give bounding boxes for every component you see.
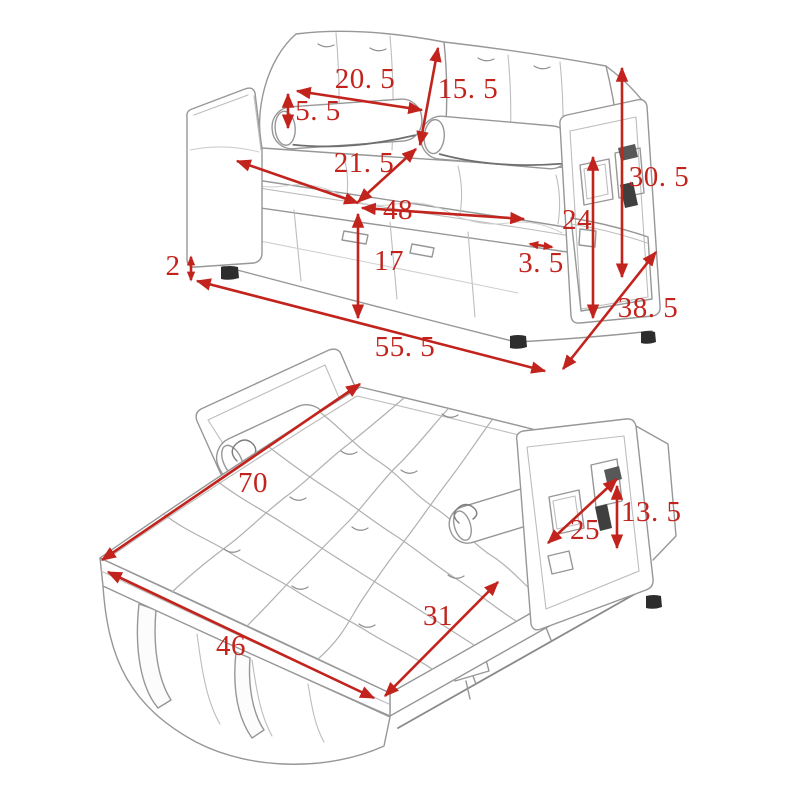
dim-pillow-height: 5. 5: [288, 94, 341, 128]
sofa-dimension-diagram: 20. 5 5. 5 15. 5 21. 5 48 17 3. 5: [0, 0, 800, 800]
dim-label-seat-depth: 21. 5: [334, 147, 395, 179]
dim-seat-front-height: 17: [358, 214, 404, 318]
sofa-bed-open-sketch: [100, 349, 676, 764]
dim-label-armrest-thickness: 3. 5: [518, 247, 564, 279]
sofa-closed-sketch: [187, 31, 660, 348]
dim-label-overall-width: 55. 5: [375, 331, 436, 363]
dimension-diagram-page: 20. 5 5. 5 15. 5 21. 5 48 17 3. 5: [0, 0, 800, 800]
left-armrest: [187, 88, 262, 267]
dim-label-side-pocket-height: 24: [562, 204, 592, 236]
dim-label-armrest-panel-height: 13. 5: [621, 496, 682, 528]
dim-label-overall-depth: 38. 5: [618, 292, 679, 324]
dim-label-seat-front-height: 17: [374, 245, 404, 277]
dim-label-back-cushion-width: 20. 5: [335, 63, 396, 95]
drawer-handle: [410, 244, 434, 257]
dim-armrest-thickness: 3. 5: [518, 244, 564, 279]
drawer-handle: [342, 231, 368, 244]
dim-overall-width: 55. 5: [197, 281, 545, 371]
dim-label-pullout-extension: 31: [423, 600, 453, 632]
dim-label-backrest-height: 15. 5: [438, 73, 499, 105]
dim-label-armrest-height: 30. 5: [629, 161, 690, 193]
dim-label-side-pocket-width: 25: [570, 514, 600, 546]
dim-label-seat-width: 48: [383, 194, 413, 226]
dim-label-leg-height: 2: [166, 250, 181, 282]
dim-label-pillow-height: 5. 5: [295, 95, 341, 127]
dim-label-bed-length: 70: [238, 467, 268, 499]
dim-label-bed-width: 46: [216, 630, 246, 662]
